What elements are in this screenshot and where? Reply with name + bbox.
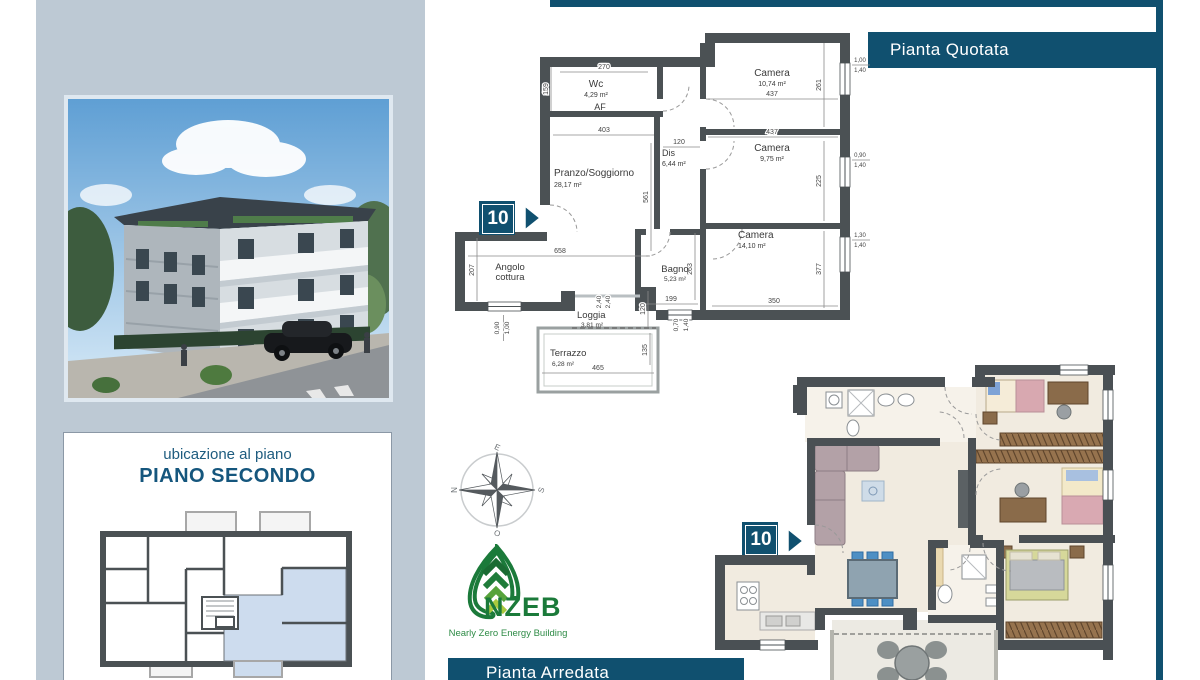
building-rendering-illustration bbox=[68, 99, 389, 398]
room-label-camera2: Camera bbox=[754, 143, 790, 154]
location-label: ubicazione al piano bbox=[64, 446, 391, 463]
dim-label: 0,90 bbox=[854, 153, 866, 159]
nzeb-acronym: NZEB bbox=[484, 592, 562, 623]
room-label-af: AF bbox=[594, 102, 606, 112]
unit-number: 10 bbox=[482, 204, 514, 234]
room-label-terrazzo: Terrazzo bbox=[550, 348, 586, 359]
room-label-cottura-2: cottura bbox=[495, 272, 525, 283]
dim-label: 403 bbox=[598, 127, 610, 134]
key-plan bbox=[86, 505, 368, 680]
room-label-wc: Wc bbox=[589, 79, 603, 90]
dim-label: 2,40 bbox=[596, 295, 603, 308]
dim-label: 1,00 bbox=[504, 321, 511, 334]
dim-label: 207 bbox=[469, 264, 476, 276]
nzeb-tagline: Nearly Zero Energy Building bbox=[438, 628, 578, 639]
dim-label: 0,90 bbox=[494, 321, 501, 334]
right-border-bar bbox=[1156, 0, 1163, 680]
room-area-dis: 6,44 m² bbox=[662, 161, 686, 168]
keyplan-unit-terrace bbox=[234, 661, 282, 677]
room-label-soggiorno: Pranzo/Soggiorno bbox=[554, 168, 634, 179]
dim-label: 120 bbox=[673, 139, 685, 146]
dim-label: 199 bbox=[665, 296, 677, 303]
room-label-loggia: Loggia bbox=[577, 310, 606, 321]
keyplan-stairs bbox=[202, 597, 238, 629]
room-area-camera3: 14,10 m² bbox=[738, 243, 766, 250]
compass-rose: E S N O bbox=[450, 443, 545, 538]
pianta-arredata-drawing bbox=[700, 350, 1130, 680]
dim-label: 1,00 bbox=[854, 58, 866, 64]
building-photo bbox=[64, 95, 393, 402]
floor-label: PIANO SECONDO bbox=[64, 465, 391, 488]
dim-label: 135 bbox=[642, 344, 649, 356]
nzeb-logo: NZEB Nearly Zero Energy Building bbox=[438, 544, 578, 644]
room-area-loggia: 3,81 m² bbox=[581, 322, 604, 329]
dim-label: 1,40 bbox=[854, 243, 866, 249]
room-area-wc: 4,29 m² bbox=[584, 92, 608, 99]
room-area-bagno: 5,23 m² bbox=[664, 276, 687, 283]
dim-label: 120 bbox=[640, 303, 647, 315]
dim-label: 437 bbox=[766, 91, 778, 98]
dim-label: 437 bbox=[766, 129, 778, 136]
location-box: ubicazione al piano PIANO SECONDO bbox=[63, 432, 392, 680]
dim-label: 658 bbox=[554, 248, 566, 255]
dim-label: 561 bbox=[643, 191, 650, 203]
room-label-camera3: Camera bbox=[738, 230, 774, 241]
left-panel: ubicazione al piano PIANO SECONDO bbox=[36, 0, 425, 680]
dining-table bbox=[848, 552, 897, 606]
compass-o: O bbox=[493, 528, 502, 538]
dim-label: 225 bbox=[816, 175, 823, 187]
band-pianta-quotata: Pianta Quotata bbox=[868, 32, 1157, 68]
brochure-page: ubicazione al piano PIANO SECONDO bbox=[0, 0, 1200, 680]
compass-s: S bbox=[536, 486, 545, 494]
dim-label: 350 bbox=[768, 298, 780, 305]
dim-label: 261 bbox=[816, 79, 823, 91]
dim-label: 465 bbox=[592, 365, 604, 372]
room-area-camera1: 10,74 m² bbox=[758, 81, 786, 88]
dim-label: 0,70 bbox=[673, 318, 680, 331]
room-label-dis: Dis bbox=[662, 148, 675, 158]
room-label-bagno: Bagno bbox=[661, 264, 688, 275]
dim-label: 159 bbox=[543, 83, 550, 95]
dim-label: 1,40 bbox=[854, 163, 866, 169]
entrance-arrow-quotata bbox=[524, 205, 541, 231]
dim-label: 377 bbox=[816, 263, 823, 275]
band-arredata-title: Pianta Arredata bbox=[486, 663, 609, 680]
compass-e: E bbox=[493, 443, 502, 453]
dim-label: 1,30 bbox=[854, 233, 866, 239]
unit-badge-quotata: 10 bbox=[479, 201, 515, 235]
room-area-terrazzo: 6,28 m² bbox=[552, 361, 575, 368]
room-area-camera2: 9,75 m² bbox=[760, 156, 784, 163]
room-area-soggiorno: 28,17 m² bbox=[554, 182, 582, 189]
dim-label: 2,40 bbox=[605, 295, 612, 308]
dim-label: 270 bbox=[598, 64, 610, 71]
compass-star bbox=[459, 452, 535, 528]
top-border-bar bbox=[550, 0, 1163, 7]
room-label-camera1: Camera bbox=[754, 68, 790, 79]
dim-label: 1,40 bbox=[854, 68, 866, 74]
dim-label: 1,40 bbox=[683, 318, 690, 331]
band-quotata-title: Pianta Quotata bbox=[890, 40, 1009, 59]
compass-n: N bbox=[450, 487, 459, 493]
